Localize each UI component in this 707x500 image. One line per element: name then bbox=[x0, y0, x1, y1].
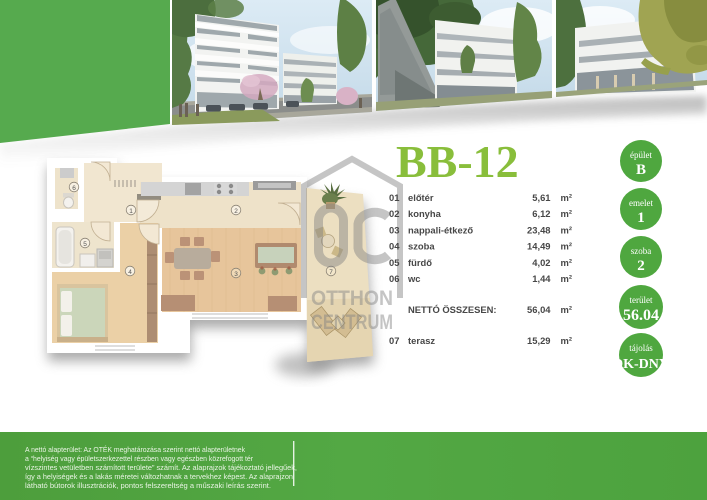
svg-text:m²: m² bbox=[561, 241, 572, 252]
svg-text:6: 6 bbox=[72, 185, 76, 192]
svg-text:56,04: 56,04 bbox=[527, 304, 551, 315]
svg-text:OTTHON: OTTHON bbox=[311, 287, 393, 310]
svg-text:fürdő: fürdő bbox=[408, 257, 432, 268]
svg-text:m²: m² bbox=[561, 304, 572, 315]
svg-text:1: 1 bbox=[637, 210, 645, 226]
svg-text:épület: épület bbox=[630, 150, 652, 160]
svg-text:m²: m² bbox=[561, 335, 572, 346]
svg-text:B: B bbox=[636, 162, 646, 178]
svg-text:5: 5 bbox=[83, 241, 87, 248]
svg-text:terület: terület bbox=[630, 295, 653, 305]
svg-text:3: 3 bbox=[234, 271, 238, 278]
svg-text:szoba: szoba bbox=[631, 246, 652, 256]
svg-text:vízszintes vetületben számítot: vízszintes vetületben számított területe… bbox=[25, 463, 297, 472]
svg-text:m²: m² bbox=[561, 273, 572, 284]
svg-text:2: 2 bbox=[637, 258, 645, 274]
svg-text:m²: m² bbox=[561, 224, 572, 235]
svg-text:04: 04 bbox=[389, 241, 400, 252]
svg-text:BB-12: BB-12 bbox=[396, 136, 519, 187]
svg-text:1,44: 1,44 bbox=[532, 273, 551, 284]
svg-text:7: 7 bbox=[329, 269, 333, 276]
svg-text:06: 06 bbox=[389, 273, 399, 284]
svg-text:konyha: konyha bbox=[408, 208, 442, 219]
svg-text:23,48: 23,48 bbox=[527, 224, 550, 235]
svg-text:4,02: 4,02 bbox=[532, 257, 550, 268]
svg-text:5,61: 5,61 bbox=[532, 192, 550, 203]
svg-text:emelet: emelet bbox=[629, 198, 653, 208]
svg-text:1: 1 bbox=[129, 208, 133, 215]
svg-text:m²: m² bbox=[561, 257, 572, 268]
svg-text:01: 01 bbox=[389, 192, 399, 203]
svg-text:m²: m² bbox=[561, 192, 572, 203]
svg-text:14,49: 14,49 bbox=[527, 241, 550, 252]
svg-text:6,12: 6,12 bbox=[532, 208, 550, 219]
svg-text:látható bútorok illusztrációk,: látható bútorok illusztrációk, pontos fe… bbox=[25, 481, 271, 490]
svg-text:07: 07 bbox=[389, 335, 399, 346]
svg-text:CENTRUM: CENTRUM bbox=[311, 311, 393, 334]
svg-text:DK-DNY: DK-DNY bbox=[613, 357, 669, 372]
svg-text:tájolás: tájolás bbox=[629, 343, 653, 353]
svg-text:03: 03 bbox=[389, 224, 399, 235]
svg-text:2: 2 bbox=[234, 208, 238, 215]
svg-text:56.04: 56.04 bbox=[623, 307, 659, 324]
svg-text:terasz: terasz bbox=[408, 335, 435, 346]
svg-text:NETTÓ ÖSSZESEN:: NETTÓ ÖSSZESEN: bbox=[408, 304, 497, 315]
svg-text:15,29: 15,29 bbox=[527, 335, 550, 346]
svg-text:wc: wc bbox=[407, 273, 421, 284]
svg-text:a “helyiség vagy épületszerkez: a “helyiség vagy épületszerkezettel rész… bbox=[25, 454, 254, 463]
svg-text:előtér: előtér bbox=[408, 192, 434, 203]
svg-text:szoba: szoba bbox=[408, 241, 435, 252]
svg-text:nappali-étkező: nappali-étkező bbox=[408, 224, 473, 235]
svg-text:4: 4 bbox=[128, 269, 132, 276]
svg-text:02: 02 bbox=[389, 208, 399, 219]
svg-text:így a helyiségek és a lakás mé: így a helyiségek és a lakás méretei vált… bbox=[25, 472, 293, 481]
svg-text:A nettó alapterület: Az OTÉK m: A nettó alapterület: Az OTÉK meghatározá… bbox=[25, 445, 245, 454]
svg-text:05: 05 bbox=[389, 257, 399, 268]
svg-text:m²: m² bbox=[561, 208, 572, 219]
